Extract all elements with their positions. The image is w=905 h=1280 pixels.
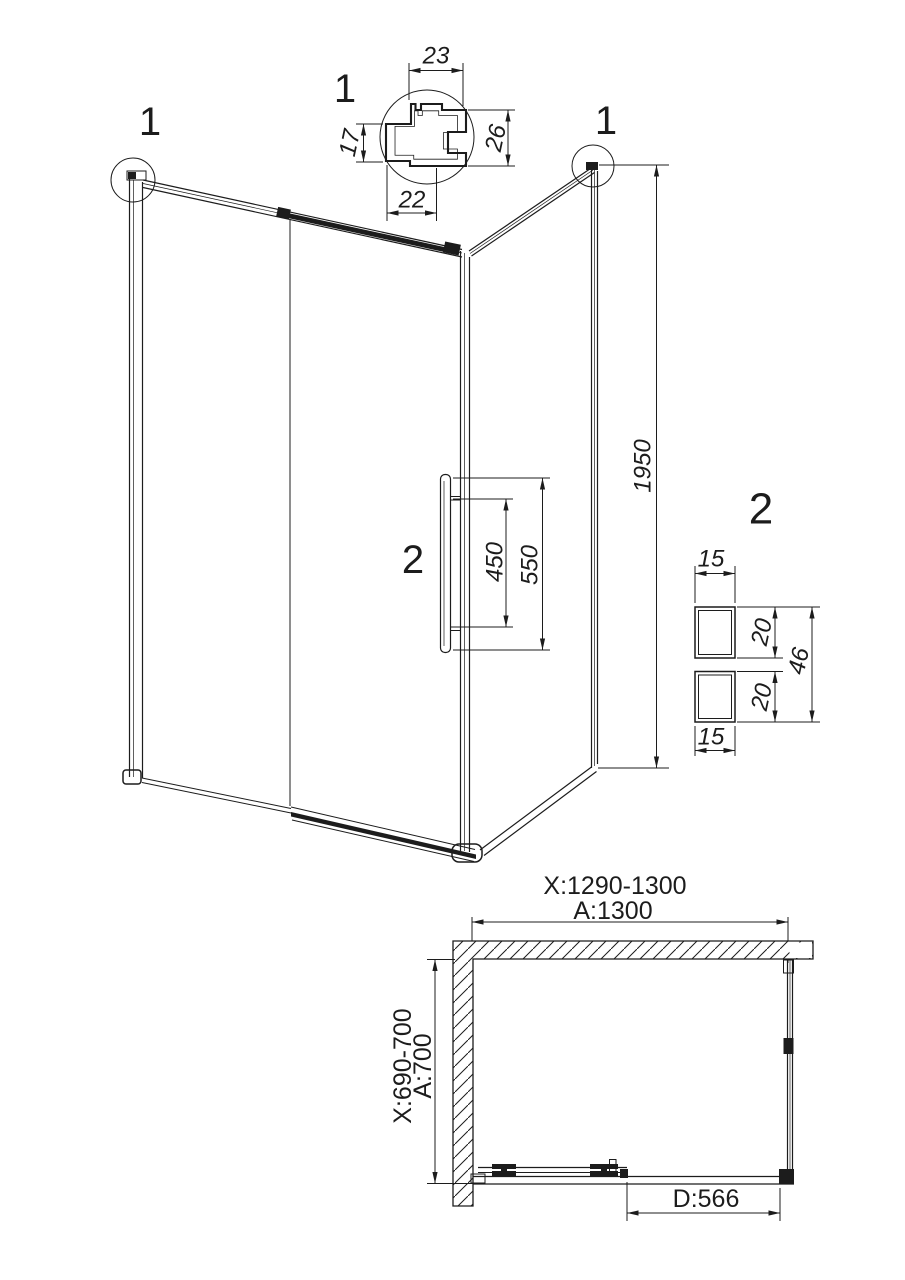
handle450-dim-text: 450 bbox=[482, 541, 509, 582]
drawing-sheet: 1 1 1950 2 450 550 1 2 bbox=[0, 0, 905, 1280]
wall-junction-cap bbox=[586, 162, 598, 170]
detail2-label: 2 bbox=[749, 485, 773, 534]
plan-width-text: A:1300 bbox=[573, 897, 652, 925]
d1-23-text: 23 bbox=[422, 43, 450, 70]
callout-label-handle: 2 bbox=[402, 538, 424, 582]
plan-depth-text: A:700 bbox=[409, 1033, 437, 1098]
handle550-dim-text: 550 bbox=[517, 544, 544, 585]
height-dim-text: 1950 bbox=[630, 439, 657, 493]
detail1-label: 1 bbox=[334, 67, 356, 111]
plan-width-range-text: X:1290-1300 bbox=[543, 872, 686, 900]
callout-label-top-left: 1 bbox=[139, 100, 161, 144]
roller-stem bbox=[601, 1164, 607, 1176]
plan-door-dim-text: D:566 bbox=[673, 1185, 740, 1213]
wall-plain-segment bbox=[790, 943, 813, 959]
roller-stem bbox=[501, 1164, 507, 1176]
d2-15t-text: 15 bbox=[698, 546, 725, 573]
technical-drawing: 1 1 1950 2 450 550 1 2 bbox=[0, 0, 905, 1280]
plan-panel-clip-middle bbox=[784, 1038, 794, 1054]
callout-label-top-right: 1 bbox=[595, 99, 617, 143]
left-post-corner-block bbox=[128, 172, 136, 179]
d2-15b-text: 15 bbox=[698, 724, 725, 751]
d1-22-text: 22 bbox=[398, 187, 426, 214]
plan-door-end-block bbox=[620, 1169, 628, 1178]
